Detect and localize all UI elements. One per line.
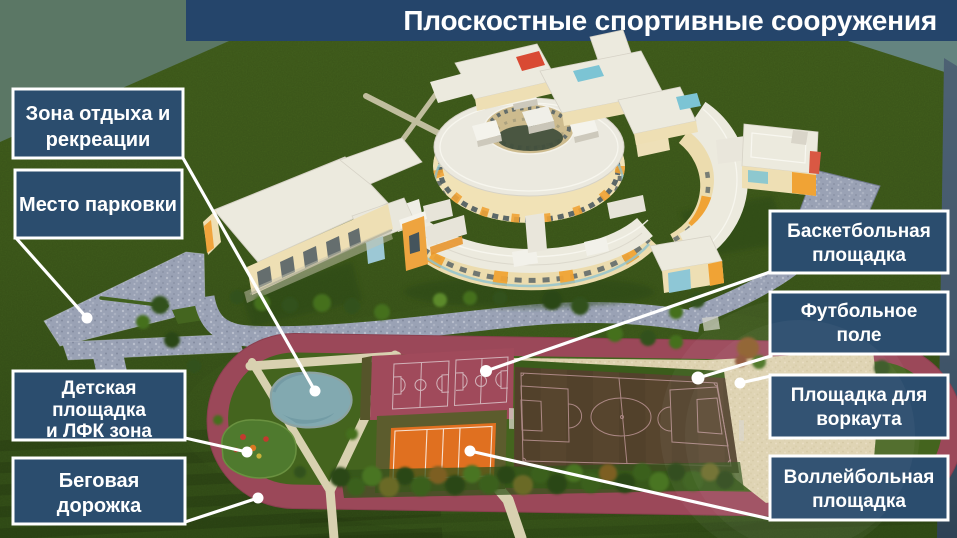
- svg-text:площадка: площадка: [52, 400, 146, 421]
- svg-text:площадка: площадка: [812, 245, 906, 266]
- svg-text:Плоскостные спортивные сооруже: Плоскостные спортивные сооружения: [403, 5, 937, 36]
- svg-text:Детская: Детская: [62, 378, 137, 399]
- svg-text:Баскетбольная: Баскетбольная: [787, 221, 931, 242]
- svg-text:рекреации: рекреации: [46, 129, 151, 151]
- svg-text:Зона отдыха и: Зона отдыха и: [26, 103, 171, 125]
- svg-text:дорожка: дорожка: [57, 495, 142, 517]
- svg-text:Беговая: Беговая: [59, 470, 140, 492]
- svg-text:Футбольное: Футбольное: [801, 301, 918, 322]
- svg-text:Место парковки: Место парковки: [19, 194, 177, 216]
- svg-text:и ЛФК зона: и ЛФК зона: [46, 421, 152, 442]
